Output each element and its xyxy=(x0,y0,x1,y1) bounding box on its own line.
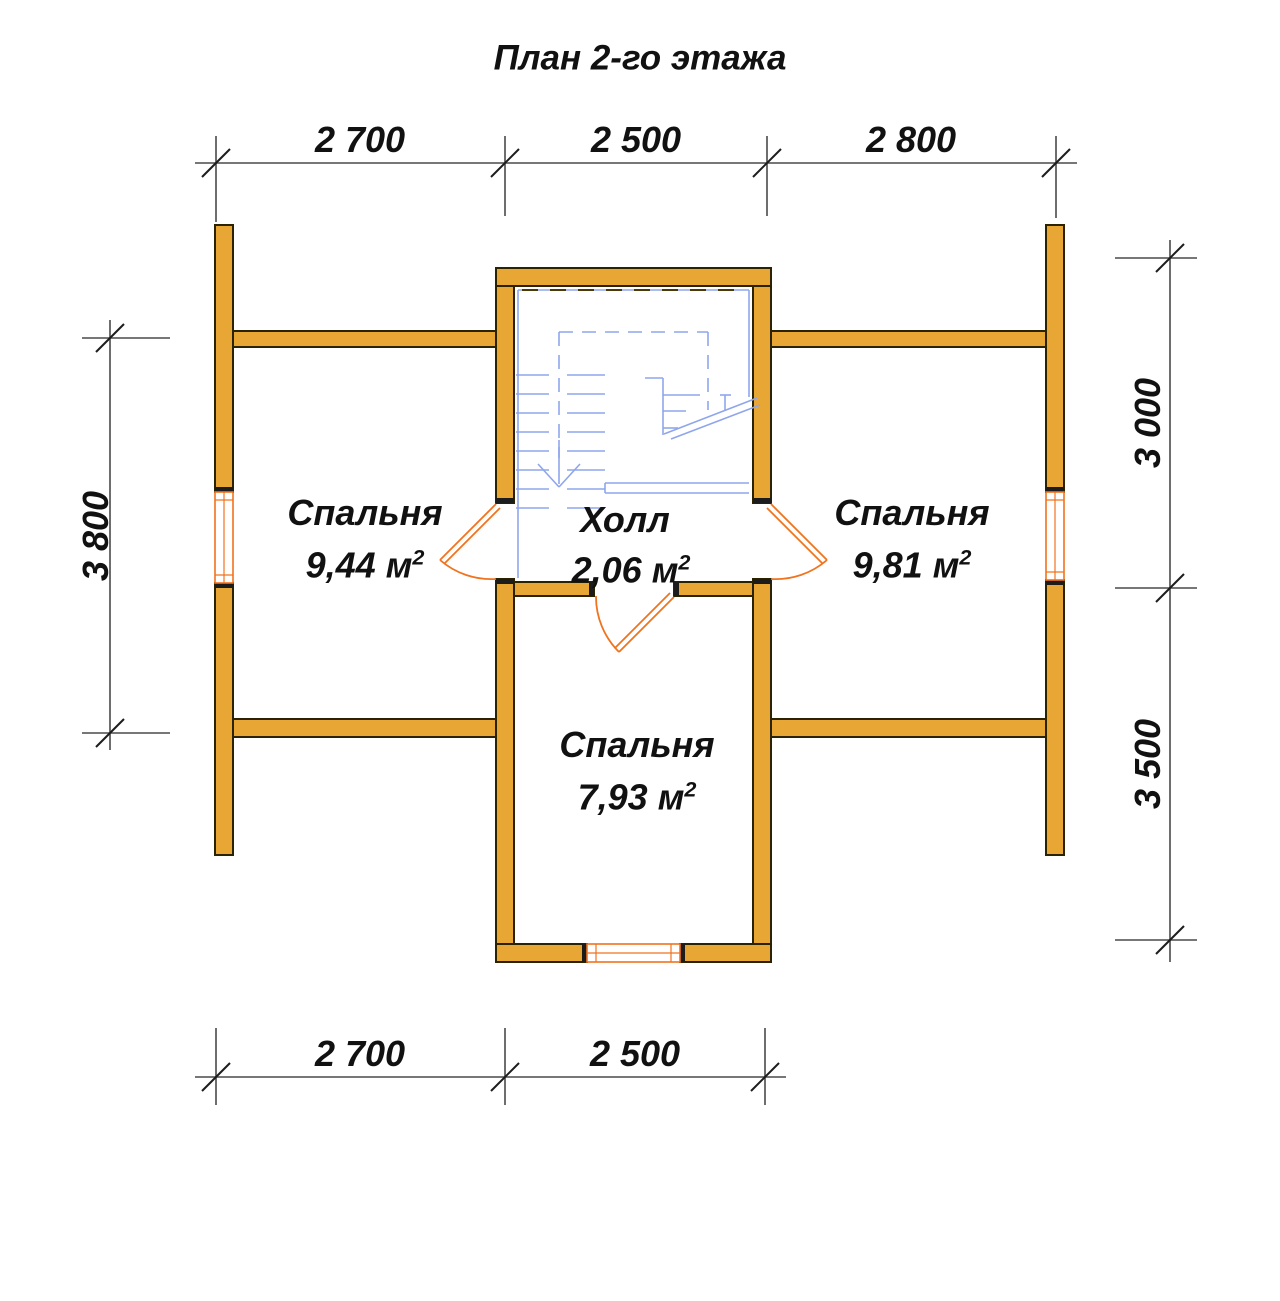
dim-label-right-3000: 3 000 xyxy=(1130,378,1166,468)
floor-plan-drawing xyxy=(0,0,1280,1301)
dim-label-top-2700: 2 700 xyxy=(315,122,405,158)
wall-hall-top xyxy=(496,268,771,286)
wall-right-exterior-upper xyxy=(1046,225,1064,492)
room-area-exponent: 2 xyxy=(412,545,424,570)
wall-top-left xyxy=(233,331,496,347)
room-area-exponent: 2 xyxy=(684,777,696,802)
wall-center-right-lower xyxy=(753,579,771,962)
window-left xyxy=(215,492,233,583)
stair-direction-arrow xyxy=(538,440,580,487)
floor-plan-page: План 2-го этажа 2 700 2 500 2 800 2 700 … xyxy=(0,0,1280,1301)
dim-label-right-3500: 3 500 xyxy=(1130,719,1166,809)
room-area-bedroom-bottom: 7,93 м2 xyxy=(578,779,697,816)
room-area-hall: 2,06 м2 xyxy=(572,552,691,589)
stair-treads xyxy=(516,375,605,508)
wall-left-exterior-upper xyxy=(215,225,233,492)
dim-label-top-2800: 2 800 xyxy=(866,122,956,158)
dimension-line-bottom xyxy=(195,1028,786,1105)
wall-bottom-right xyxy=(771,719,1046,737)
walls xyxy=(215,225,1064,962)
room-area-exponent: 2 xyxy=(678,550,690,575)
dim-label-top-2500: 2 500 xyxy=(591,122,681,158)
wall-bottom-left xyxy=(233,719,496,737)
room-name-hall: Холл xyxy=(580,502,669,538)
wall-bedroom3-bottom-left xyxy=(496,944,587,962)
room-name-bedroom-bottom: Спальня xyxy=(559,727,714,763)
door-right-bedroom xyxy=(767,504,827,579)
stair-landing-edge xyxy=(605,483,749,493)
dim-label-bottom-2700: 2 700 xyxy=(315,1036,405,1072)
door-left-bedroom xyxy=(440,504,500,579)
wall-center-left-lower xyxy=(496,579,514,962)
room-name-bedroom-right: Спальня xyxy=(834,495,989,531)
dim-label-bottom-2500: 2 500 xyxy=(590,1036,680,1072)
door-bottom-bedroom xyxy=(596,593,674,652)
room-area-value: 7,93 м xyxy=(578,777,685,818)
wall-right-exterior-lower xyxy=(1046,580,1064,855)
page-title: План 2-го этажа xyxy=(494,41,787,76)
room-area-exponent: 2 xyxy=(959,545,971,570)
room-name-bedroom-left: Спальня xyxy=(287,495,442,531)
room-area-value: 9,81 м xyxy=(853,545,960,586)
window-right xyxy=(1046,492,1064,580)
dimension-line-right xyxy=(1115,240,1197,962)
room-area-value: 9,44 м xyxy=(306,545,413,586)
wall-top-right xyxy=(771,331,1046,347)
room-area-bedroom-right: 9,81 м2 xyxy=(853,547,972,584)
wall-center-left-upper xyxy=(496,286,514,503)
room-area-bedroom-left: 9,44 м2 xyxy=(306,547,425,584)
room-area-value: 2,06 м xyxy=(572,550,679,591)
wall-left-exterior-lower xyxy=(215,583,233,855)
wall-center-right-upper xyxy=(753,286,771,503)
window-bottom xyxy=(587,944,680,962)
dim-label-left-3800: 3 800 xyxy=(78,491,114,581)
stair-winders xyxy=(645,378,760,439)
wall-bedroom3-bottom-right xyxy=(680,944,771,962)
